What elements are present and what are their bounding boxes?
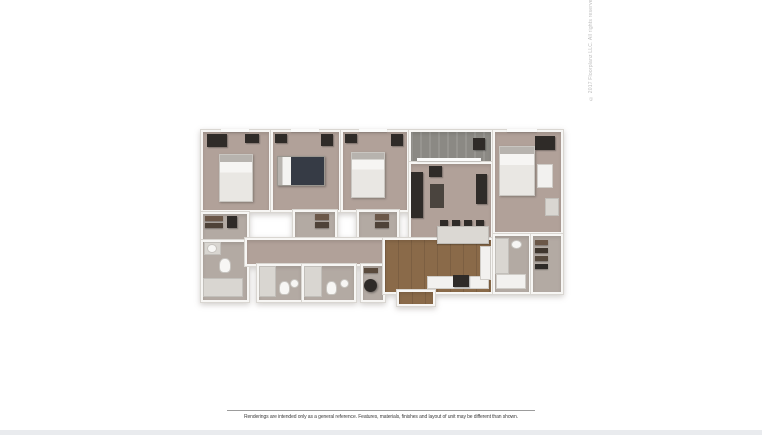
bedroom-1-dresser: [245, 134, 259, 143]
window-bedroom-2: [291, 129, 319, 132]
living-sofa: [411, 172, 423, 218]
kitchen-stove: [453, 275, 469, 287]
room-hallway: [245, 238, 385, 266]
bedroom-2-dresser: [275, 134, 287, 143]
bedroom-3-bed: [351, 152, 385, 198]
kitchen-bar-counter: [437, 226, 489, 244]
patio-door: [417, 158, 481, 161]
bathroom-2-toilet: [279, 281, 290, 295]
window-bedroom-1: [221, 129, 249, 132]
bathroom-1-tub: [203, 278, 243, 297]
bathroom-3-toilet: [326, 281, 337, 295]
disclaimer-caption: Renderings are intended only as a genera…: [0, 414, 762, 420]
closet-3-shelf: [375, 214, 389, 220]
bedroom-3-dresser: [345, 134, 357, 143]
bottom-strip: [0, 430, 762, 435]
bathroom-4-shower: [495, 238, 509, 274]
closet-1-shelf: [205, 223, 223, 228]
bedroom-4-dresser: [537, 164, 553, 188]
water-heater: [364, 279, 377, 292]
bathroom-1-toilet: [219, 258, 231, 273]
kitchen-fridge: [480, 246, 491, 280]
bathroom-4-sink: [511, 240, 522, 249]
closet-2-shelf: [315, 214, 329, 220]
bathroom-1-sink: [207, 244, 217, 253]
closet-2-shelf: [315, 222, 329, 228]
closet-4-shelf: [535, 264, 548, 269]
bedroom-2-bed: [277, 156, 325, 186]
closet-1-shelf: [205, 216, 223, 221]
living-chair: [429, 166, 442, 177]
copyright-watermark: © 2017 Floorplanz LLC. All rights reserv…: [588, 3, 598, 101]
bedroom-3-desk: [391, 134, 403, 146]
caption-divider: [227, 410, 535, 411]
balcony-grill: [473, 138, 485, 150]
living-rug: [430, 184, 444, 208]
bedroom-1-desk: [207, 134, 227, 147]
page: { "caption": { "text": "Renderings are i…: [0, 0, 762, 435]
window-bedroom-4: [507, 129, 537, 132]
bedroom-4-desk: [535, 136, 555, 150]
bathroom-4-tub: [496, 274, 526, 289]
closet-1-storage: [227, 216, 237, 228]
closet-4-shelf: [535, 256, 548, 261]
closet-4-shelf: [535, 240, 548, 245]
bedroom-2-desk: [321, 134, 333, 146]
floor-plan-rendering: [199, 128, 567, 306]
bathroom-3-sink: [340, 279, 349, 288]
bedroom-4-bed: [499, 146, 535, 196]
bathroom-3-shower: [304, 266, 322, 297]
room-entry: [397, 290, 435, 306]
closet-3-shelf: [375, 222, 389, 228]
window-bedroom-3: [359, 129, 387, 132]
utility-shelf: [364, 268, 378, 273]
living-media-console: [476, 174, 487, 204]
closet-4-shelf: [535, 248, 548, 253]
bedroom-1-bed: [219, 154, 253, 202]
bathroom-2-shower: [259, 266, 276, 297]
bedroom-4-bench: [545, 198, 559, 216]
bathroom-2-sink: [290, 279, 299, 288]
